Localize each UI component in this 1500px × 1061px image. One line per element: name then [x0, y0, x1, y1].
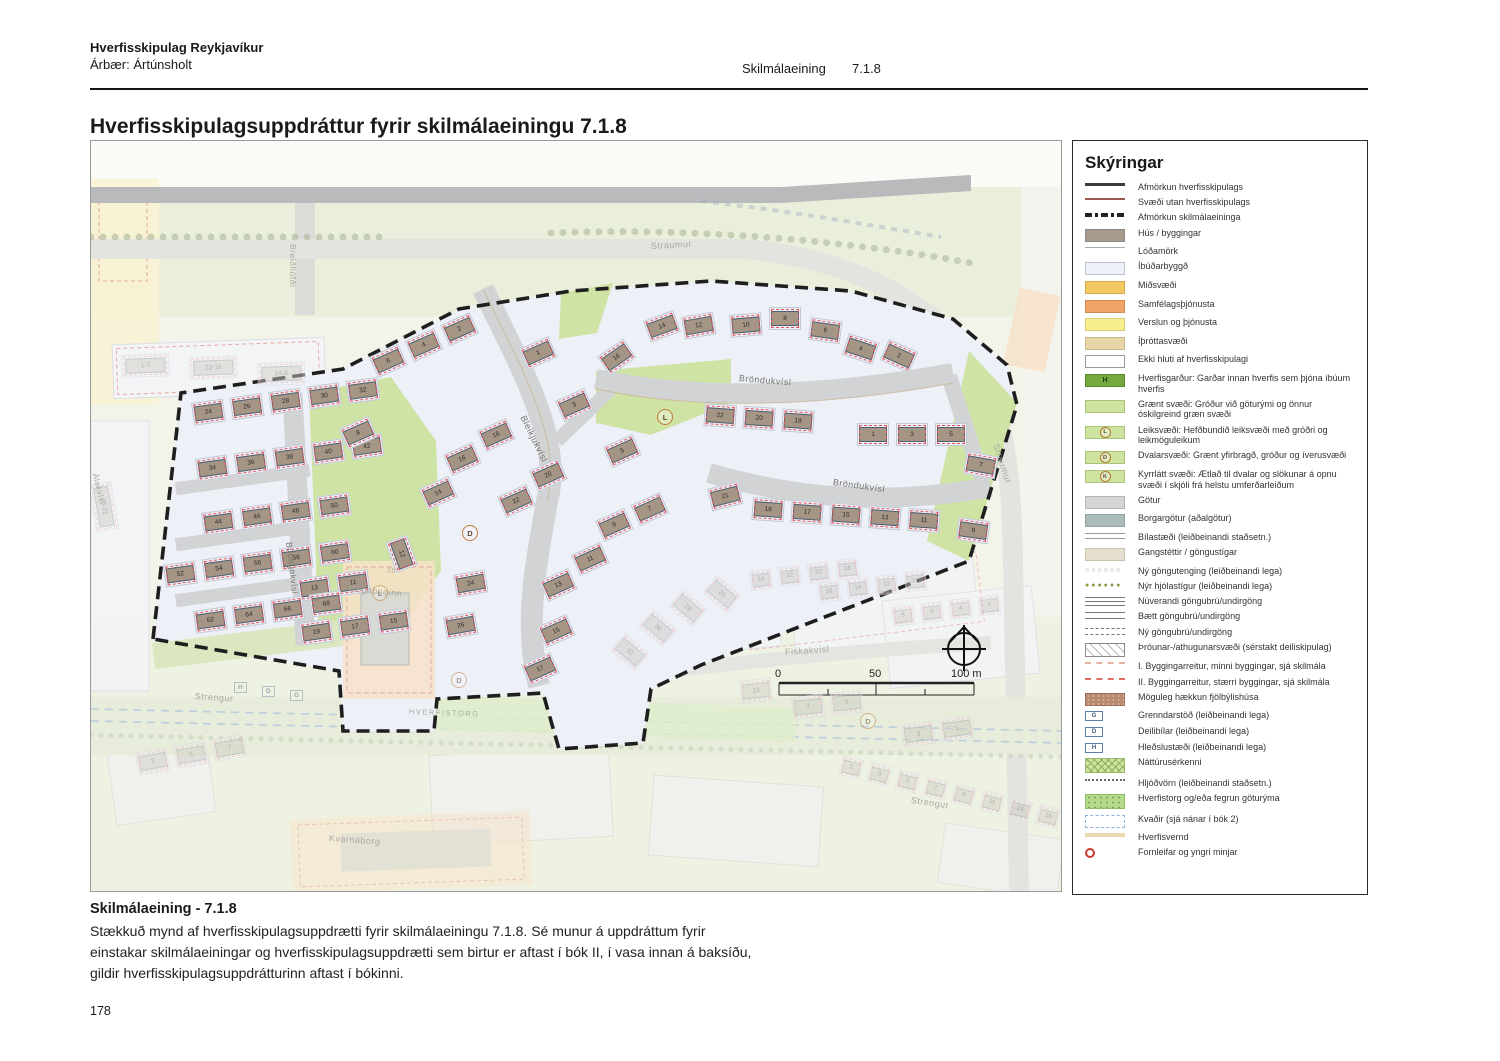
house-group: 7 — [963, 451, 999, 479]
house-number: 24 — [194, 403, 223, 422]
house-lot: 5 — [603, 434, 642, 468]
house-number: 34 — [198, 459, 227, 478]
house-number: 60 — [320, 543, 349, 562]
house-lot: 22 — [703, 403, 737, 428]
legend-item-label: Afmörkun skilmálaeininga — [1129, 212, 1241, 223]
legend-panel: Skýringar Afmörkun hverfisskipulagsSvæði… — [1072, 140, 1368, 895]
house-number: 15 — [541, 619, 572, 644]
house-group: 97 — [595, 492, 669, 542]
house-group: 5 — [603, 434, 642, 468]
house-number: 2 — [883, 344, 914, 369]
house-lot: 28 — [668, 589, 707, 627]
legend-item: Borgargötur (aðalgötur) — [1085, 513, 1357, 527]
house-lot: 16 — [817, 580, 841, 603]
house-number: 48 — [281, 502, 310, 521]
legend-swatch-graent: L — [1085, 426, 1129, 439]
house-number: 5 — [833, 694, 862, 712]
house-number: 1 — [859, 427, 886, 442]
header-subtitle: Árbær: Ártúnsholt — [90, 57, 192, 73]
house-lot: 1 — [940, 715, 975, 742]
header-section-number: 7.1.8 — [852, 61, 881, 77]
legend-item: Grænt svæði: Gróður við göturými og önnu… — [1085, 399, 1357, 420]
legend-swatch-gotur — [1085, 496, 1129, 509]
house-group: 12 — [681, 311, 717, 339]
legend-swatch-hatch — [1085, 643, 1129, 657]
house-number: 36 — [237, 453, 266, 472]
legend-item-label: II. Byggingarreitur, stærri byggingar, s… — [1129, 677, 1330, 688]
house-number: 66 — [273, 600, 302, 619]
house-lot: 5 — [173, 741, 209, 769]
legend-item: Hús / byggingar — [1085, 228, 1357, 242]
house-lot: 17 — [790, 500, 824, 525]
house-lot: 16 — [443, 442, 482, 476]
legend-swatch-vernd — [1085, 833, 1129, 837]
house-group: 11 — [571, 542, 610, 576]
house-number: 19 — [754, 501, 782, 518]
house-lot: 9 — [595, 508, 634, 542]
house-number: 68 — [312, 595, 341, 614]
legend-swatch-line-skil — [1085, 213, 1129, 217]
house-lot: 1-7 — [121, 353, 170, 378]
area-marker-l: L — [657, 409, 673, 425]
legend-item: II. Byggingarreitur, stærri byggingar, s… — [1085, 677, 1357, 688]
house-lot: 50 — [317, 492, 352, 519]
house-lot: 3 — [896, 423, 928, 446]
house-group: 44464850 — [201, 492, 352, 536]
house-number: 7 — [215, 738, 244, 757]
house-lot: 5 — [830, 690, 864, 716]
house-lot: 24 — [453, 569, 489, 597]
legend-swatch-hus — [1085, 229, 1129, 242]
house-lot: 8 — [769, 307, 801, 330]
house-number: 26 — [446, 616, 475, 635]
house-group: 30 — [638, 609, 677, 647]
house-number: 3 — [898, 427, 925, 442]
header-section-label: Skilmálaeining — [742, 61, 826, 77]
house-lot: 40 — [311, 438, 346, 465]
house-lot: 15 — [537, 614, 576, 648]
house-group: 9 — [956, 517, 991, 544]
legend-item-label: Gangstéttir / göngustígar — [1129, 547, 1237, 558]
area-marker-l: L — [372, 585, 388, 601]
house-number: 12 — [390, 539, 413, 570]
legend-swatch-line-utan — [1085, 198, 1129, 200]
house-number: 2 — [444, 317, 475, 342]
legend-swatch-kvadir — [1085, 815, 1129, 828]
house-lot: 17 — [338, 613, 373, 640]
legend-swatch-mid — [1085, 281, 1129, 294]
legend-item-label: Lóðamörk — [1129, 246, 1178, 257]
house-group: 16 — [597, 339, 636, 376]
legend-item: Ekki hluti af hverfisskipulagi — [1085, 354, 1357, 368]
house-lot: 7 — [212, 734, 248, 762]
house-group: 32 — [610, 633, 649, 671]
house-lot: 6 — [369, 344, 408, 378]
legend-item: Svæði utan hverfisskipulags — [1085, 197, 1357, 208]
house-number: 12 — [877, 577, 897, 592]
area-marker-d: D — [451, 672, 467, 688]
house-lot: 11 — [571, 542, 610, 576]
legend-item: DDeilibílar (leiðbeinandi lega) — [1085, 726, 1357, 737]
house-number: 18 — [837, 561, 857, 576]
house-lot: 36 — [234, 449, 269, 476]
legend-item: LLeiksvæði: Hefðbundið leiksvæði með gró… — [1085, 425, 1357, 446]
house-number: 54 — [205, 559, 234, 578]
legend-item-label: Hverfistorg og/eða fegrun göturýma — [1129, 793, 1280, 804]
house-group: 3 — [555, 388, 594, 422]
house-lot: 18 — [477, 418, 516, 452]
house-group: 6 — [808, 317, 843, 344]
document-page: Hverfisskipulag Reykjavíkur Árbær: Ártún… — [0, 0, 1500, 1061]
house-lot: 24 — [749, 568, 773, 591]
house-lot: 5 — [894, 769, 920, 794]
legend-swatch-gang — [1085, 548, 1129, 561]
house-lot: 22-16 — [189, 355, 238, 380]
legend-item-label: Hverfisvernd — [1129, 832, 1189, 843]
house-number: 46 — [243, 507, 272, 526]
house-lot: 14 — [419, 476, 458, 510]
legend-item-label: Samfélagsþjónusta — [1129, 299, 1215, 310]
house-number: 22-16 — [193, 359, 234, 375]
legend-item: Miðsvæði — [1085, 280, 1357, 294]
house-lot: 9 — [956, 517, 991, 544]
house-lot: 7 — [963, 451, 999, 479]
legend-item-label: Ekki hluti af hverfisskipulagi — [1129, 354, 1248, 365]
house-group: 28 — [668, 589, 707, 627]
house-number: 20 — [745, 410, 773, 427]
house-lot: 10 — [729, 312, 763, 338]
house-number: 62 — [196, 611, 225, 630]
legend-item: Náttúrusérkenni — [1085, 757, 1357, 773]
house-lot: 16 — [597, 339, 636, 376]
street-label: Fiskakvísl — [785, 644, 830, 657]
house-number: 15 — [379, 612, 408, 631]
house-lot: 14 — [846, 577, 870, 600]
house-group: 18 — [477, 418, 516, 452]
legend-swatch-linesdash — [1085, 628, 1129, 635]
legend-item: DDvalarsvæði: Grænt yfirbragð, gróður og… — [1085, 450, 1357, 464]
house-number: 22 — [780, 568, 800, 583]
house-lot: 15 — [376, 608, 411, 635]
house-group: 1-7 — [121, 353, 170, 378]
legend-item: Ný göngubrú/undirgöng — [1085, 627, 1357, 638]
plan-map: 0 50 100 m 24262830323436384042444648505… — [90, 140, 1062, 892]
legend-swatch-borgar — [1085, 514, 1129, 527]
legend-swatch-ekki — [1085, 355, 1129, 368]
house-group: 22 — [497, 484, 536, 518]
legend-item-label: Götur — [1129, 495, 1161, 506]
house-group: 15 — [537, 614, 576, 648]
house-number: 14 — [647, 315, 678, 338]
legend-item-label: Afmörkun hverfisskipulags — [1129, 182, 1243, 193]
legend-swatch-iconbox: H — [1085, 743, 1129, 753]
street-label: Bröndukvísl — [739, 373, 792, 388]
legend-item: Íbúðarbyggð — [1085, 261, 1357, 275]
house-lot: 9 — [951, 783, 977, 808]
facility-marker-g: G — [290, 690, 303, 701]
house-group: 20 — [529, 458, 568, 492]
house-group: 16 — [443, 442, 482, 476]
house-number: 22 — [501, 489, 532, 514]
house-lot: 3 — [866, 762, 892, 787]
legend-item-label: Íbúðarbyggð — [1129, 261, 1188, 272]
legend-item: Lóðamörk — [1085, 246, 1357, 257]
house-group: 1 — [519, 336, 558, 370]
page-title: Hverfisskipulagsuppdráttur fyrir skilmál… — [90, 115, 627, 139]
house-lot: 13 — [1007, 797, 1033, 822]
house-lot: 5 — [935, 423, 967, 446]
house-number: 10 — [905, 573, 925, 588]
house-group: 14-8 — [257, 361, 306, 386]
caption-title: Skilmálaeining - 7.1.8 — [90, 901, 237, 917]
legend-item-label: Verslun og þjónusta — [1129, 317, 1217, 328]
street-label: Straumur — [651, 239, 692, 251]
house-group: 31 — [901, 715, 975, 748]
house-lot: 34 — [195, 455, 230, 482]
house-lot: 6 — [808, 317, 843, 344]
legend-item: Núverandi göngubrú/undirgöng — [1085, 596, 1357, 607]
house-group: 17 — [521, 652, 560, 686]
legend-item: ●●●●●●Nýr hjólastígur (leiðbeinandi lega… — [1085, 581, 1357, 592]
house-lot: 15 — [829, 502, 863, 527]
legend-item-label: Nýr hjólastígur (leiðbeinandi lega) — [1129, 581, 1272, 592]
house-number: 18 — [481, 423, 512, 448]
legend-item: Íþróttasvæði — [1085, 336, 1357, 350]
house-number: 1 — [943, 719, 972, 738]
legend-swatch-iconbox: D — [1085, 727, 1129, 737]
house-number: 11 — [981, 794, 1002, 811]
house-lot: 6 — [920, 601, 944, 624]
legend-item: Möguleg hækkun fjölbýlishúsa — [1085, 692, 1357, 706]
legend-item-label: Deilibílar (leiðbeinandi lega) — [1129, 726, 1249, 737]
legend-swatch-dashI — [1085, 662, 1129, 664]
legend-swatch-line-afm — [1085, 183, 1129, 186]
house-number: 50 — [320, 497, 349, 516]
legend-item-label: Bætt göngubrú/undirgöng — [1129, 611, 1240, 622]
house-group: 26 — [443, 611, 479, 639]
house-number: 14-8 — [261, 365, 302, 381]
house-number: 4 — [951, 601, 971, 616]
house-lot: 30 — [638, 609, 677, 647]
legend-item: ○○○○○○Ný göngutenging (leiðbeinandi lega… — [1085, 566, 1357, 577]
house-number: 2 — [979, 597, 999, 612]
house-number: 32 — [615, 638, 645, 667]
house-lot: 7 — [631, 492, 670, 526]
house-lot: 21 — [707, 481, 744, 511]
house-lot: 15 — [1035, 804, 1061, 829]
house-group: 26 — [702, 575, 741, 613]
legend-item: Þróunar-/athugunarsvæði (sérstakt deilis… — [1085, 642, 1357, 657]
house-lot: 62 — [193, 607, 228, 634]
legend-swatch-graent: K — [1085, 470, 1129, 483]
house-number: 64 — [235, 605, 264, 624]
house-lot: 1 — [857, 423, 889, 446]
house-lot: 54 — [202, 555, 237, 582]
house-lot: 2 — [977, 594, 1001, 617]
house-number: 7 — [966, 455, 995, 474]
house-group: 13 — [739, 678, 773, 704]
house-number: 15 — [1038, 808, 1059, 825]
house-number: 17 — [525, 657, 556, 682]
house-number: 5 — [607, 439, 638, 464]
legend-item-label: Ný göngutenging (leiðbeinandi lega) — [1129, 566, 1282, 577]
legend-item: Hljóðvörn (leiðbeinandi staðsetn.) — [1085, 778, 1357, 789]
house-lot: 19 — [299, 619, 334, 646]
house-lot: 4 — [949, 597, 973, 620]
house-lot: 3 — [555, 388, 594, 422]
legend-swatch-haekkun — [1085, 693, 1129, 706]
house-number: 7 — [925, 780, 946, 797]
house-lot: 14-8 — [257, 361, 306, 386]
street-label: HVERFISTORG — [409, 707, 480, 718]
house-group: 642 — [369, 312, 479, 378]
legend-item-label: Kyrrlátt svæði: Ætlað til dvalar og slök… — [1129, 469, 1357, 490]
house-number: 7 — [794, 698, 823, 716]
house-lot: 56 — [240, 550, 275, 577]
legend-item-label: Borgargötur (aðalgötur) — [1129, 513, 1232, 524]
header-rule — [90, 88, 1368, 90]
house-number: 13 — [871, 509, 899, 526]
house-lot: 4 — [405, 328, 444, 362]
legend-item-label: I. Byggingarreitur, minni byggingar, sjá… — [1129, 661, 1326, 672]
house-number: 4 — [845, 338, 875, 361]
legend-swatch-versl — [1085, 318, 1129, 331]
street-label: Bleikjukvísl — [519, 414, 550, 464]
house-number: 1-7 — [125, 357, 166, 373]
house-group: 13 — [539, 568, 578, 602]
house-lot: 13 — [539, 568, 578, 602]
legend-item-label: Þróunar-/athugunarsvæði (sérstakt deilis… — [1129, 642, 1332, 653]
legend-item-label: Fornleifar og yngri minjar — [1129, 847, 1238, 858]
house-lot: 52 — [163, 561, 198, 588]
house-lot: 12 — [875, 573, 899, 596]
legend-swatch-hljod — [1085, 779, 1129, 781]
house-lot: 44 — [201, 509, 236, 536]
header-brand: Hverfisskipulag Reykjavíkur — [90, 40, 263, 56]
house-number: 16 — [819, 584, 839, 599]
house-group: 14 — [643, 310, 681, 343]
legend-item: Fornleifar og yngri minjar — [1085, 847, 1357, 858]
house-group: 1917151311 — [751, 497, 940, 533]
house-number: 16 — [447, 447, 478, 472]
legend-swatch-dashII — [1085, 678, 1129, 680]
house-number: 3 — [869, 766, 890, 783]
legend-item-label: Hverfisgarður: Garðar innan hverfis sem … — [1129, 373, 1357, 394]
house-lot: 46 — [240, 503, 275, 530]
legend-item-label: Dvalarsvæði: Grænt yfirbragð, gróður og … — [1129, 450, 1346, 461]
house-group: 22-16 — [189, 355, 238, 380]
legend-item: Hverfistorg og/eða fegrun göturýma — [1085, 793, 1357, 809]
legend-swatch-dots-fill: ●●●●●● — [1085, 582, 1129, 589]
legend-item-label: Kvaðir (sjá nánar í bók 2) — [1129, 814, 1239, 825]
map-overlay: 2426283032343638404244464850525456586013… — [91, 141, 1061, 891]
house-number: 21 — [710, 486, 740, 507]
house-number: 52 — [166, 565, 195, 584]
legend-item: HHleðslustæði (leiðbeinandi lega) — [1085, 742, 1357, 753]
house-number: 3 — [559, 393, 590, 418]
legend-item: Gangstéttir / göngustígar — [1085, 547, 1357, 561]
house-number: 12 — [684, 316, 713, 335]
house-lot: 4 — [842, 333, 880, 365]
house-group: 2 — [880, 339, 919, 373]
house-lot: 7 — [791, 694, 825, 720]
house-number: 9 — [959, 521, 988, 540]
house-lot: 20 — [807, 561, 831, 584]
house-number: 13 — [742, 682, 771, 700]
house-lot: 32 — [610, 633, 649, 671]
house-group: 4 — [842, 333, 880, 365]
legend-item: Afmörkun skilmálaeininga — [1085, 212, 1357, 223]
page-number: 178 — [90, 1004, 111, 1018]
house-lot: 13 — [868, 505, 902, 530]
house-number: 15 — [832, 507, 860, 524]
house-lot: 3 — [135, 747, 171, 775]
legend-item-label: Íþróttasvæði — [1129, 336, 1188, 347]
legend-item-label: Hljóðvörn (leiðbeinandi staðsetn.) — [1129, 778, 1272, 789]
house-lot: 64 — [232, 601, 267, 628]
house-lot: 3 — [901, 721, 936, 748]
house-lot: 28 — [268, 388, 303, 415]
house-number: 6 — [811, 321, 840, 340]
house-lot: 68 — [309, 590, 344, 617]
house-lot: 20 — [742, 406, 776, 431]
house-lot: 1 — [838, 755, 864, 780]
legend-item: HHverfisgarður: Garðar innan hverfis sem… — [1085, 373, 1357, 394]
house-number: 30 — [310, 387, 339, 406]
house-number: 20 — [533, 463, 564, 488]
house-group: 357 — [135, 734, 247, 776]
legend-swatch-dots-open: ○○○○○○ — [1085, 567, 1129, 574]
house-lot: 10 — [903, 570, 927, 593]
house-number: 26 — [233, 397, 262, 416]
legend-swatch-line-lod — [1085, 247, 1129, 248]
house-number: 3 — [138, 752, 167, 771]
legend-swatch-graent — [1085, 400, 1129, 413]
house-group: 13579111315 — [838, 755, 1061, 829]
legend-swatch-natt — [1085, 758, 1129, 773]
house-lot: 26 — [702, 575, 741, 613]
house-number: 17 — [793, 504, 821, 521]
house-group: 8642 — [891, 594, 1002, 627]
legend-item: Kvaðir (sjá nánar í bók 2) — [1085, 814, 1357, 828]
legend-item-label: Náttúrusérkenni — [1129, 757, 1202, 768]
legend-item: Hverfisvernd — [1085, 832, 1357, 843]
house-number: 17 — [341, 617, 370, 636]
street-label: Kvarnaborg — [329, 833, 381, 847]
house-lot: 13 — [739, 678, 773, 704]
legend-item: Afmörkun hverfisskipulags — [1085, 182, 1357, 193]
house-number: 5 — [897, 773, 918, 790]
legend-rows: Afmörkun hverfisskipulagsSvæði utan hver… — [1085, 182, 1357, 858]
house-lot: 1 — [519, 336, 558, 370]
house-group: 10 — [729, 312, 763, 338]
house-number: 5 — [937, 427, 964, 442]
house-lot: 12 — [681, 311, 717, 339]
house-number: 13 — [1009, 801, 1030, 818]
legend-item: GGrenndarstöð (leiðbeinandi lega) — [1085, 710, 1357, 721]
house-number: 14 — [848, 580, 868, 595]
house-number: 30 — [643, 614, 673, 643]
house-number: 8 — [771, 311, 798, 326]
house-lot: 14 — [643, 310, 681, 343]
legend-swatch-bil — [1085, 533, 1129, 539]
house-group: 8 — [769, 307, 801, 330]
house-number: 11 — [575, 547, 606, 572]
house-lot: 11 — [907, 508, 941, 533]
house-number: 9 — [599, 513, 630, 538]
house-group: 24 — [453, 569, 489, 597]
house-number: 19 — [302, 623, 331, 642]
